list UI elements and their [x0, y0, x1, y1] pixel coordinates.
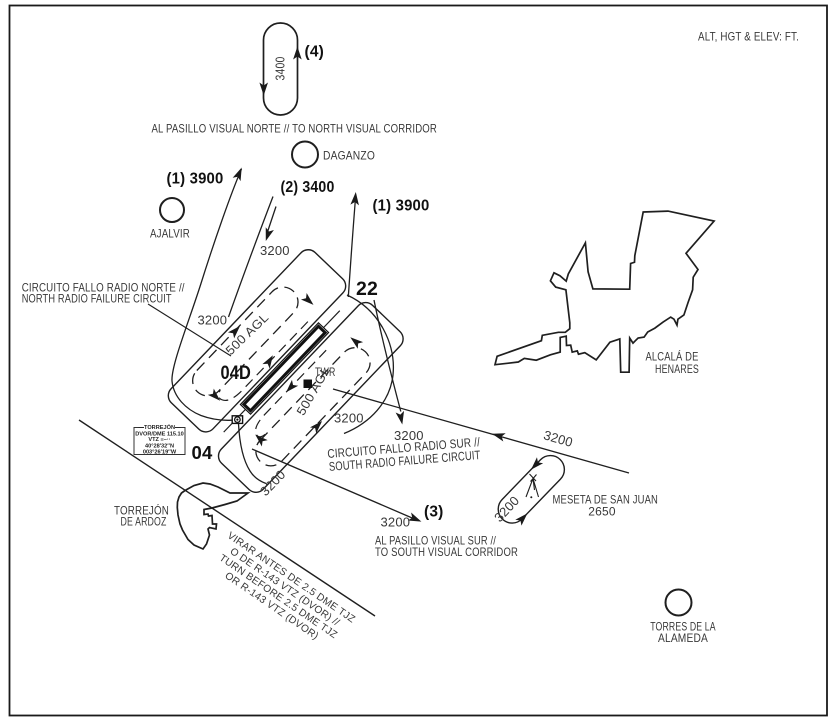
svg-text:3400: 3400	[274, 57, 288, 81]
svg-text:(4): (4)	[305, 44, 325, 61]
svg-text:AJALVIR: AJALVIR	[150, 227, 190, 241]
svg-text:TO SOUTH VISUAL CORRIDOR: TO SOUTH VISUAL CORRIDOR	[375, 545, 518, 559]
svg-text:ALT, HGT & ELEV: FT.: ALT, HGT & ELEV: FT.	[698, 30, 799, 44]
svg-text:22: 22	[356, 278, 378, 300]
svg-text:DAGANZO: DAGANZO	[323, 149, 375, 163]
svg-text:40°28′32″N: 40°28′32″N	[145, 443, 174, 449]
svg-text:(1) 3900: (1) 3900	[167, 171, 224, 188]
svg-text:TWR: TWR	[315, 367, 336, 379]
svg-text:04: 04	[192, 442, 213, 463]
svg-text:VTZ ≡–··: VTZ ≡–··	[148, 437, 170, 443]
svg-text:3200: 3200	[260, 243, 290, 258]
svg-text:AL PASILLO VISUAL NORTE // TO: AL PASILLO VISUAL NORTE // TO NORTH VISU…	[152, 122, 438, 136]
svg-text:—TORREJÓN—: —TORREJÓN—	[138, 423, 181, 431]
svg-text:NORTH RADIO FAILURE CIRCUIT: NORTH RADIO FAILURE CIRCUIT	[22, 292, 172, 306]
svg-text:3200: 3200	[381, 515, 411, 530]
svg-text:HENARES: HENARES	[655, 362, 699, 376]
svg-text:DE ARDOZ: DE ARDOZ	[121, 515, 167, 529]
svg-text:3200: 3200	[198, 313, 228, 328]
svg-text:2650: 2650	[588, 505, 616, 519]
svg-text:(1) 3900: (1) 3900	[373, 198, 430, 215]
svg-text:ALAMEDA: ALAMEDA	[658, 631, 708, 645]
svg-text:04D: 04D	[221, 362, 252, 384]
svg-text:(2) 3400: (2) 3400	[281, 179, 335, 196]
svg-text:3200: 3200	[334, 411, 364, 426]
svg-text:003°26′19″W: 003°26′19″W	[143, 450, 177, 456]
svg-text:(3): (3)	[424, 504, 444, 521]
